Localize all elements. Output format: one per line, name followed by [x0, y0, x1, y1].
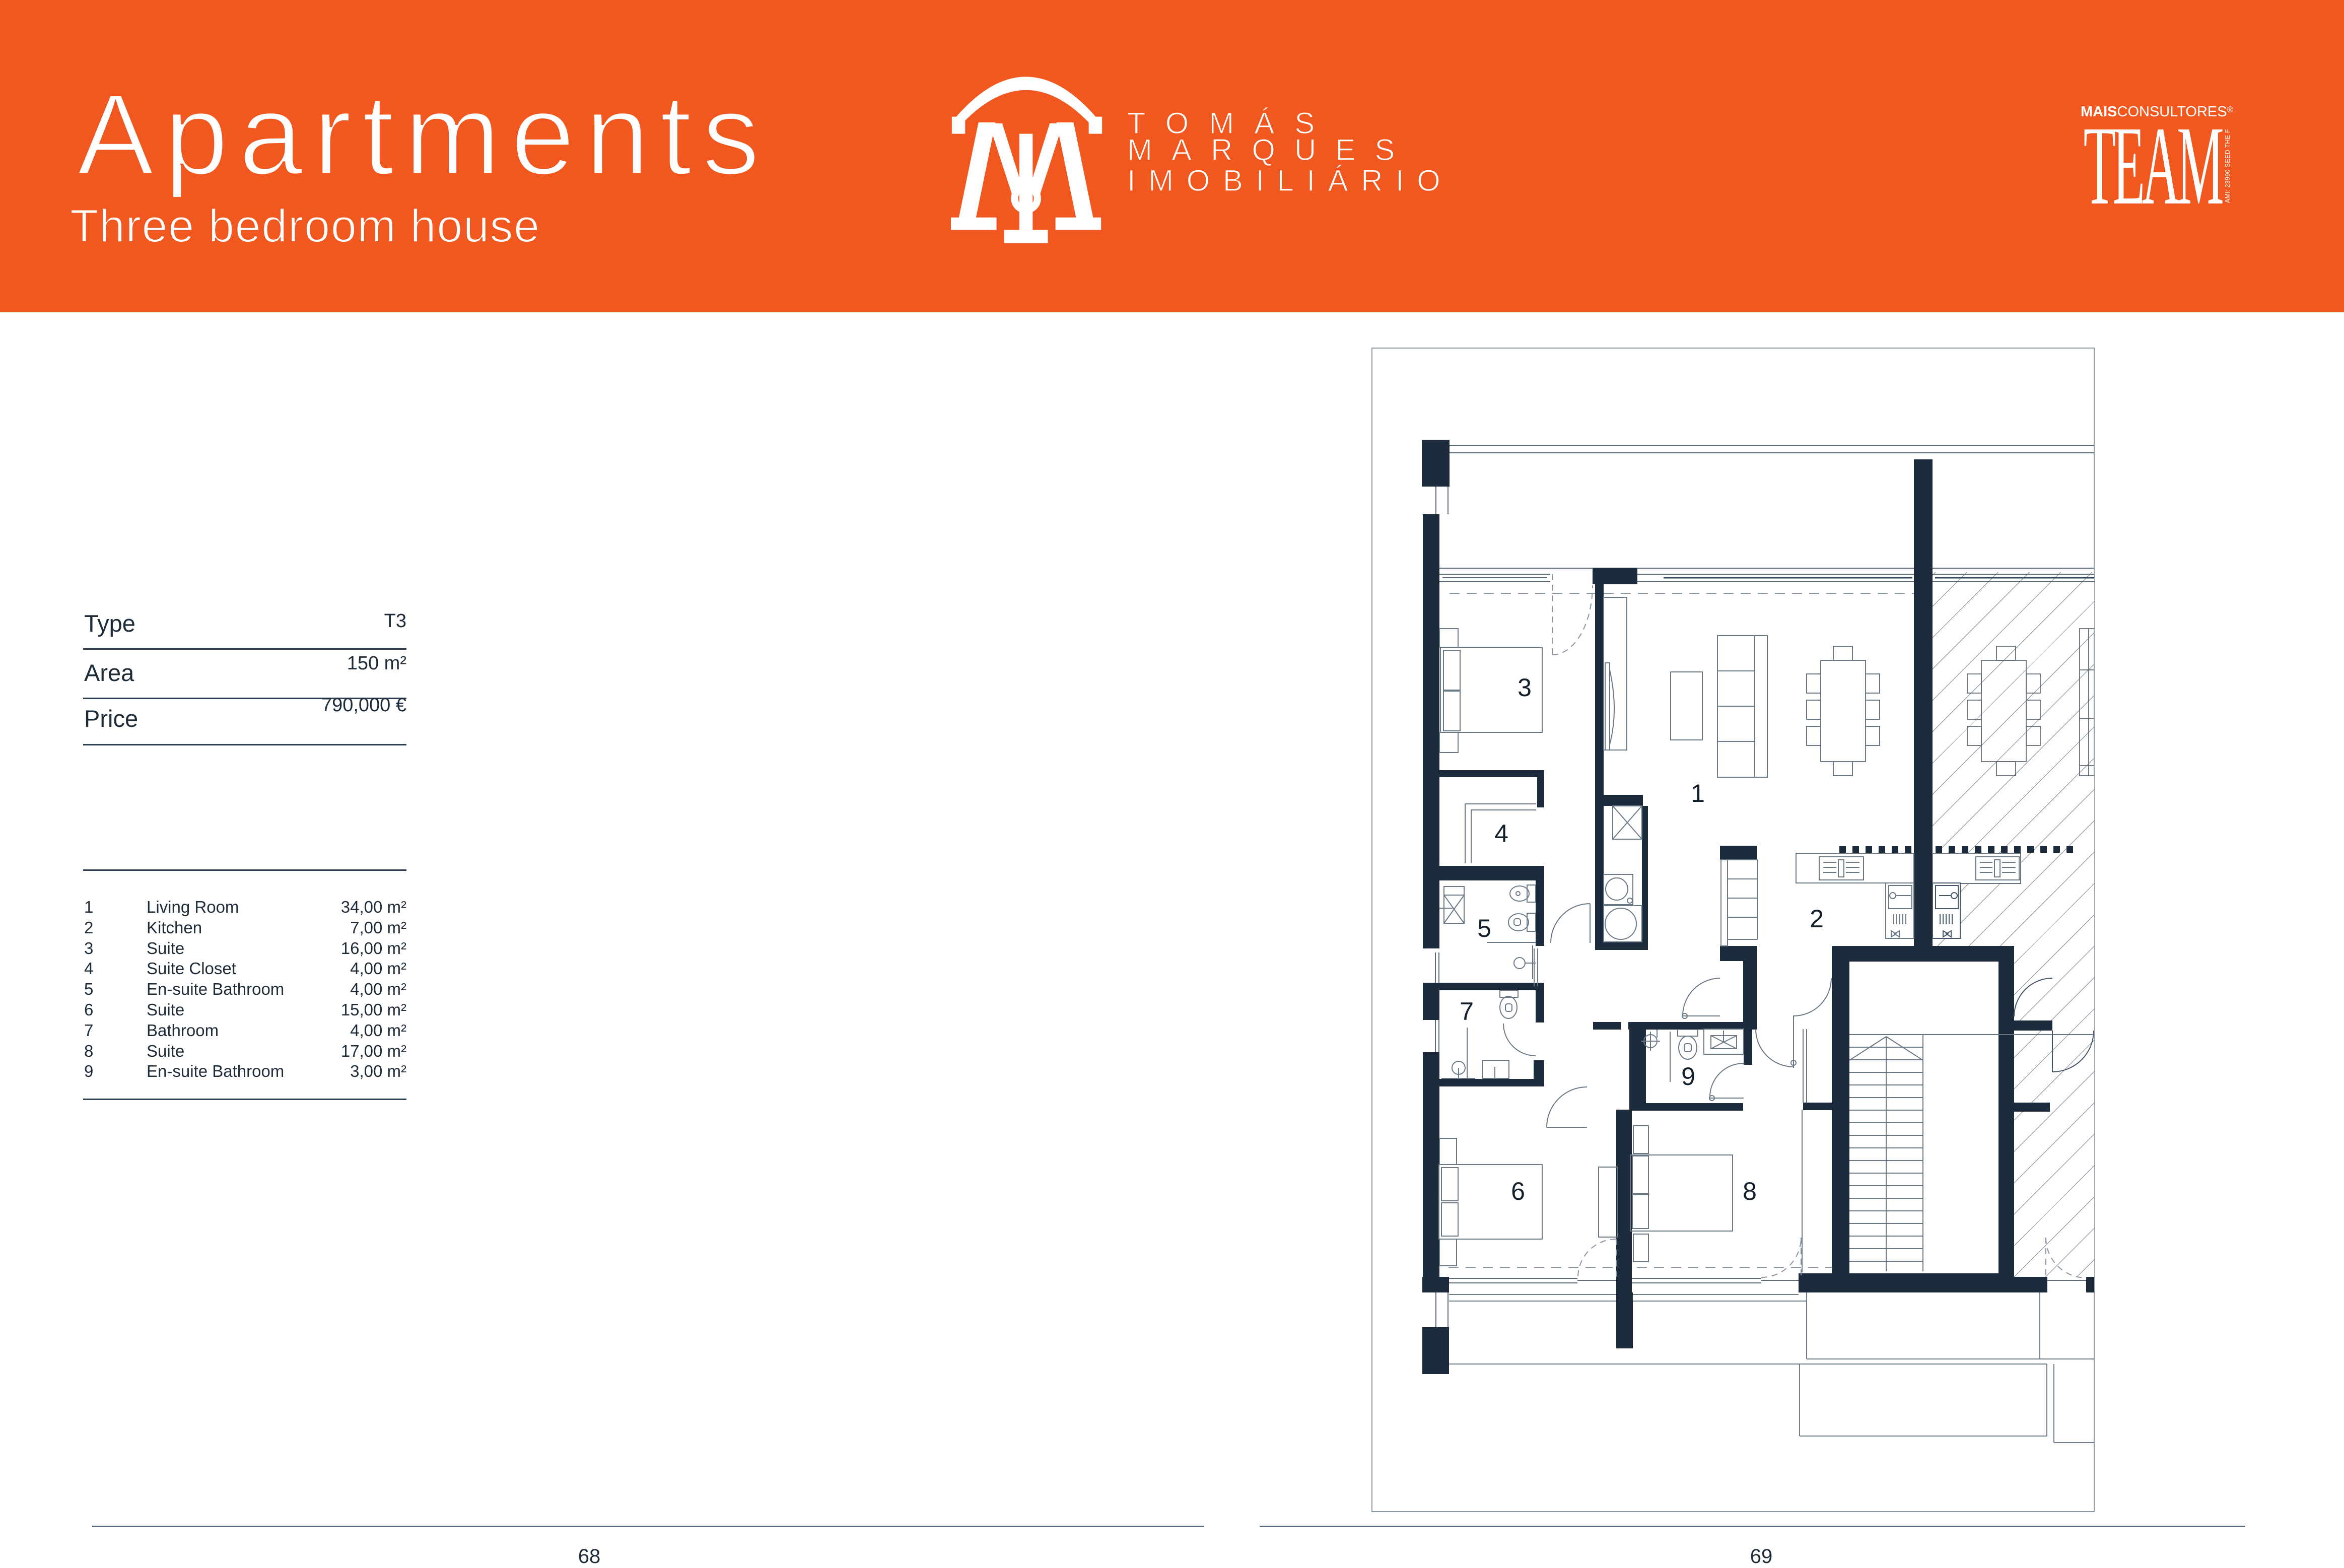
- svg-text:8: 8: [1743, 1177, 1757, 1205]
- svg-text:7: 7: [1460, 997, 1474, 1026]
- svg-text:5: 5: [1477, 914, 1491, 942]
- svg-text:2: 2: [1810, 905, 1824, 933]
- svg-text:1: 1: [1691, 779, 1705, 807]
- svg-text:9: 9: [1681, 1062, 1695, 1090]
- svg-text:3: 3: [1518, 673, 1532, 702]
- svg-text:4: 4: [1494, 820, 1508, 848]
- svg-text:TEAM: TEAM: [2084, 129, 2223, 215]
- svg-text:AMI: 23990 SEED THE FUTURE, L: AMI: 23990 SEED THE FUTURE, LDA.: [2224, 129, 2231, 203]
- svg-text:6: 6: [1511, 1177, 1525, 1205]
